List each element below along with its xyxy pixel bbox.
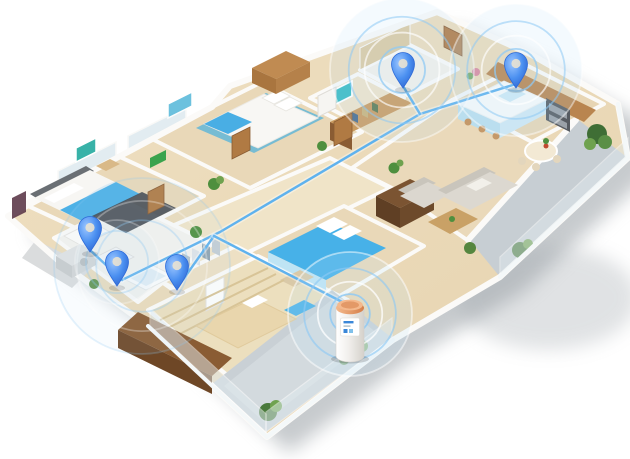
- shelf-plant: [317, 141, 327, 151]
- stool: [465, 119, 472, 126]
- corridor-palm: [216, 176, 224, 184]
- water-heater-device: [331, 300, 369, 364]
- pin-hole: [398, 59, 407, 68]
- living-plant: [397, 160, 404, 167]
- dining-chair: [518, 157, 526, 165]
- dining-chair: [553, 155, 561, 163]
- device-label-logo: [344, 321, 354, 323]
- balcony-plant: [464, 242, 476, 254]
- device-cap-inner: [341, 301, 359, 308]
- device-label-badge: [344, 329, 348, 333]
- device-label-line: [344, 325, 351, 326]
- apartment-3d-scene: [0, 0, 630, 459]
- pin-hole: [172, 261, 181, 270]
- coffee-table-plant: [449, 216, 455, 222]
- device-label-badge-2: [349, 329, 353, 333]
- pin-hole: [511, 59, 520, 68]
- pin-hole: [85, 223, 94, 232]
- balcony-plant: [584, 138, 596, 150]
- device-label: [341, 318, 360, 336]
- floorplan-illustration: [0, 0, 630, 459]
- heat-pump-water-heater: [331, 300, 369, 364]
- balcony-plant: [598, 135, 612, 149]
- table-pot: [544, 144, 549, 149]
- pin-hole: [112, 257, 121, 266]
- dining-table: [525, 141, 557, 162]
- dining-chair: [532, 163, 540, 171]
- table-plant: [543, 138, 549, 144]
